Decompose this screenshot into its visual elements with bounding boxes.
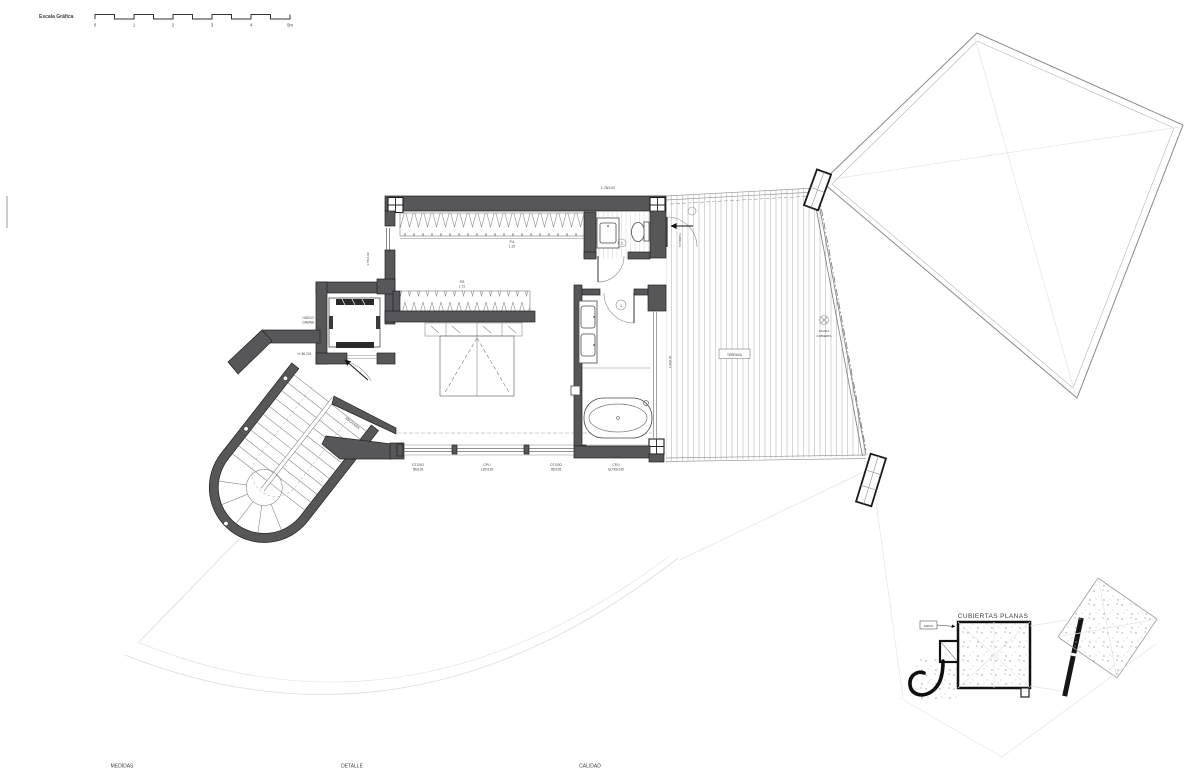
scale-tick: 1: [133, 23, 136, 28]
dressing-tag-sub: 1.15: [509, 245, 515, 249]
footer-label: MEDIDAS: [111, 764, 134, 768]
window-tag-code: CP.U: [612, 463, 620, 467]
corridor-walls: [322, 396, 404, 459]
closet-tag-sub: 1.72: [459, 285, 465, 289]
scale-tick: 3: [211, 23, 214, 28]
bath-door-number: 1: [620, 303, 623, 308]
stairs: ESCALERA: [187, 363, 378, 565]
bathtub: [584, 398, 652, 438]
terrace-deck: TERRAZA SALIDA CUBIERTA: [666, 188, 866, 462]
dim-top: 1.78/1.02: [601, 186, 615, 190]
dressing-wardrobe: P.A 1.15: [400, 213, 585, 249]
dim-left: 1.78x1.90: [366, 252, 370, 266]
window-tag-code: CP.U: [483, 463, 491, 467]
bed: [425, 323, 522, 396]
wc-toilet: [632, 222, 650, 242]
inset-title: CUBIERTAS PLANAS: [958, 613, 1029, 620]
window-tag-size: 95x135: [551, 468, 562, 472]
floor-plan-sheet: TERRAZA SALIDA CUBIERTA: [0, 0, 1200, 768]
window-tag-size: SU 95x135: [608, 468, 624, 472]
window-tag-size: 95x135: [413, 468, 424, 472]
closet-tag: P.B: [460, 280, 465, 284]
scale-bar-label: Escala Gráfica: [39, 14, 74, 20]
top-wall: [385, 196, 666, 213]
footer-labels: MEDIDAS DETALLE CALIDAD: [111, 764, 602, 768]
window-tag-size: 120x135: [481, 468, 493, 472]
wc-door-number: 2: [621, 242, 623, 246]
bath-niche: [571, 386, 580, 395]
elevator-height-label: H: 80 CM: [298, 352, 312, 356]
elevator-label-2: CABINA: [302, 321, 315, 325]
elevator-door-arrow-icon: [345, 360, 368, 380]
scale-tick: 2: [172, 23, 175, 28]
window-tag-code: OT.OSO: [550, 463, 563, 467]
roof-diamond-outline: [822, 33, 1183, 398]
footer-label: CALIDAD: [579, 764, 601, 768]
scale-tick: 0: [94, 23, 97, 28]
column-marker-1: [388, 198, 403, 213]
inset-foot: [1021, 688, 1029, 697]
inset-tag-label: GRIFO: [924, 624, 934, 628]
elevator-label-1: HUECO: [302, 316, 314, 320]
window-tag-code: OT.OSO: [412, 463, 425, 467]
site-boundary-lines: [125, 468, 903, 698]
column-bottom: [856, 454, 886, 506]
column-marker-2: [650, 198, 665, 213]
terrace-door-label: TERRAZA: [678, 233, 682, 247]
master-bathroom: 1 1.90/2.40: [571, 285, 672, 462]
inset-cubiertas: CUBIERTAS PLANAS GRIFO: [900, 578, 1157, 757]
drain-label-1: SALIDA: [819, 329, 830, 333]
window-tags: OT.OSO 95x135 CP.U 120x135 OT.OSO 95x135…: [412, 463, 624, 472]
main-plan: P.A 1.15 1.78/1.02 1.78x1.90 2: [187, 186, 697, 565]
scale-tick: 5m: [287, 23, 293, 28]
footer-label: DETALLE: [341, 764, 364, 768]
wc-room: 2: [584, 211, 666, 282]
scale-tick: 4: [250, 23, 253, 28]
scale-bar: Escala Gráfica 0 1 2 3 4 5m: [39, 14, 293, 28]
drain-label-2: CUBIERTA: [817, 334, 832, 338]
inset-leader-arrow: [937, 625, 955, 627]
bath-vanity: [579, 301, 597, 363]
dressing-tag: P.A: [510, 240, 516, 244]
plan-drawing: TERRAZA SALIDA CUBIERTA: [0, 0, 1200, 768]
column-marker-3: [649, 439, 664, 454]
bedroom-closet: P.B 1.72: [385, 280, 535, 322]
wc-sink: [597, 218, 619, 248]
scale-bar-steps: [95, 15, 290, 20]
stairs-label: ESCALERA: [345, 416, 362, 430]
terrace-tag-label: TERRAZA: [727, 353, 743, 357]
dim-bath: 1.90/2.40: [668, 355, 672, 368]
